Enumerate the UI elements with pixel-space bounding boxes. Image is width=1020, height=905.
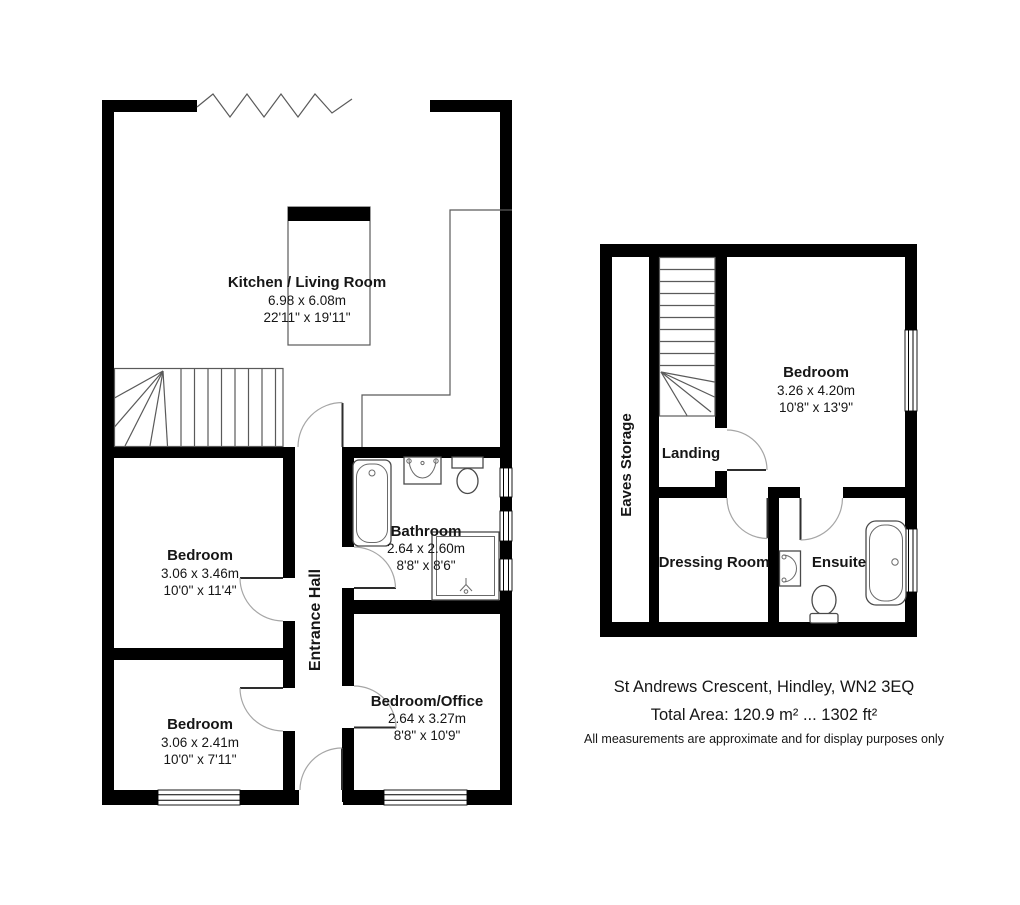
window-bathroom-2 — [500, 511, 512, 541]
door-first-bedroom — [727, 430, 767, 470]
svg-text:Kitchen / Living Room: Kitchen / Living Room — [228, 274, 386, 291]
svg-text:3.26 x 4.20m: 3.26 x 4.20m — [777, 383, 855, 398]
svg-text:Bedroom: Bedroom — [783, 364, 849, 381]
door-entrance — [300, 748, 342, 790]
door-bedroom-2 — [240, 688, 283, 731]
svg-text:2.64 x 2.60m: 2.64 x 2.60m — [387, 541, 465, 556]
room-label-bathroom: Bathroom 2.64 x 2.60m 8'8" x 8'6" — [387, 523, 465, 573]
svg-text:22'11" x 19'11": 22'11" x 19'11" — [263, 310, 350, 325]
room-label-first-bedroom: Bedroom 3.26 x 4.20m 10'8" x 13'9" — [777, 364, 855, 415]
door-bedroom-1 — [240, 578, 283, 621]
toilet-symbol — [452, 457, 483, 494]
floor-plan: Kitchen / Living Room 6.98 x 6.08m 22'11… — [0, 0, 1020, 905]
disclaimer-line: All measurements are approximate and for… — [584, 732, 945, 746]
svg-text:10'0" x 11'4": 10'0" x 11'4" — [163, 583, 236, 598]
window-bedroom-2 — [158, 790, 240, 805]
svg-text:10'0" x 7'11": 10'0" x 7'11" — [163, 752, 236, 767]
room-label-eaves-storage: Eaves Storage — [618, 413, 635, 516]
window-bathroom-3 — [500, 559, 512, 591]
address-line: St Andrews Crescent, Hindley, WN2 3EQ — [614, 678, 915, 696]
svg-text:Bedroom: Bedroom — [167, 716, 233, 733]
staircase-first — [660, 258, 716, 417]
svg-text:Bathroom: Bathroom — [391, 523, 462, 540]
window-first-bedroom — [905, 330, 917, 411]
staircase-ground — [115, 369, 284, 447]
floorplan-page: Kitchen / Living Room 6.98 x 6.08m 22'11… — [0, 0, 1020, 905]
window-ensuite — [905, 529, 917, 592]
window-bedroom-office — [384, 790, 467, 805]
bath-symbol — [353, 460, 391, 546]
svg-text:3.06 x 3.46m: 3.06 x 3.46m — [161, 566, 239, 581]
total-area-line: Total Area: 120.9 m² ... 1302 ft² — [651, 706, 878, 724]
svg-text:8'8" x 10'9": 8'8" x 10'9" — [394, 728, 461, 743]
ensuite-toilet-symbol — [810, 586, 838, 624]
room-label-entrance-hall: Entrance Hall — [307, 569, 324, 671]
window-bathroom-1 — [500, 468, 512, 497]
svg-text:Bedroom/Office: Bedroom/Office — [371, 693, 484, 710]
svg-text:8'8" x 8'6": 8'8" x 8'6" — [396, 558, 455, 573]
room-label-kitchen-living: Kitchen / Living Room 6.98 x 6.08m 22'11… — [228, 274, 386, 325]
room-label-bedroom-2: Bedroom 3.06 x 2.41m 10'0" x 7'11" — [161, 716, 239, 767]
room-label-dressing-room: Dressing Room — [659, 554, 770, 571]
ensuite-sink-symbol — [780, 551, 801, 586]
footer-text: St Andrews Crescent, Hindley, WN2 3EQ To… — [584, 678, 945, 746]
door-kitchen-hall — [298, 403, 343, 448]
svg-text:Bedroom: Bedroom — [167, 547, 233, 564]
ensuite-bath-symbol — [866, 521, 906, 605]
ground-floor-plan: Kitchen / Living Room 6.98 x 6.08m 22'11… — [102, 94, 512, 805]
room-label-bedroom-office: Bedroom/Office 2.64 x 3.27m 8'8" x 10'9" — [371, 693, 484, 743]
sink-symbol — [404, 457, 441, 484]
svg-text:6.98 x 6.08m: 6.98 x 6.08m — [268, 293, 346, 308]
room-label-bedroom-1: Bedroom 3.06 x 3.46m 10'0" x 11'4" — [161, 547, 239, 598]
wall-break-line — [197, 94, 352, 117]
first-floor-plan: Bedroom 3.26 x 4.20m 10'8" x 13'9" Landi… — [600, 244, 917, 637]
door-ensuite — [801, 498, 843, 540]
door-dressing-room — [727, 498, 768, 539]
svg-text:10'8" x 13'9": 10'8" x 13'9" — [779, 400, 853, 415]
ceiling-line — [362, 210, 512, 447]
room-label-landing: Landing — [662, 445, 720, 462]
room-label-ensuite: Ensuite — [812, 554, 866, 571]
svg-text:3.06 x 2.41m: 3.06 x 2.41m — [161, 735, 239, 750]
svg-text:2.64 x 3.27m: 2.64 x 3.27m — [388, 711, 466, 726]
